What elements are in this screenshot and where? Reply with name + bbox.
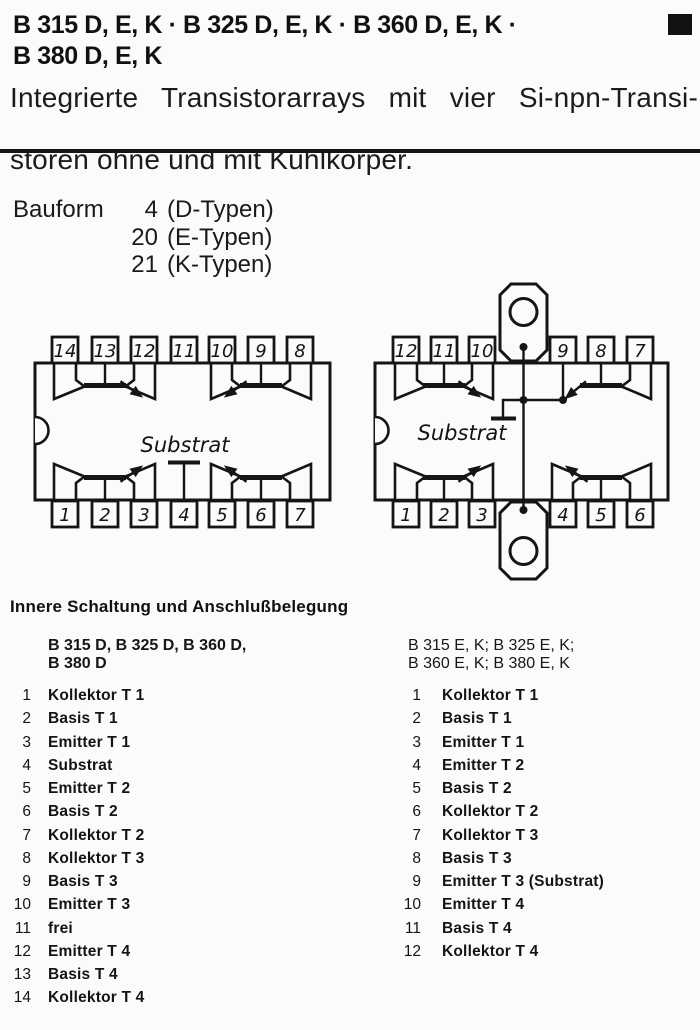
pin-list-row: 6Kollektor T 2 xyxy=(390,800,604,823)
junction-dot xyxy=(559,396,567,404)
pin-number: 1 xyxy=(0,684,31,707)
pin-number: 2 xyxy=(99,505,110,526)
pin-number: 2 xyxy=(390,707,421,730)
pin-number: 4 xyxy=(557,505,568,526)
pin-number: 3 xyxy=(390,731,421,754)
pin-number: 5 xyxy=(216,505,227,526)
pin-label: Basis T 4 xyxy=(442,917,512,940)
pin-number: 3 xyxy=(0,731,31,754)
pin-label: Basis T 3 xyxy=(48,870,118,893)
pin-list-row: 9Emitter T 3 (Substrat) xyxy=(390,870,604,893)
pin-list-row: 3Emitter T 1 xyxy=(0,731,144,754)
pin-number: 5 xyxy=(595,505,606,526)
pin-list-row: 5Basis T 2 xyxy=(390,777,604,800)
pin-number: 1 xyxy=(400,505,411,526)
pin-squares-bottom: 1 2 3 4 5 6 7 xyxy=(52,501,313,527)
pin-number: 11 xyxy=(0,917,31,940)
pin-label: Kollektor T 1 xyxy=(48,684,144,707)
pin-list-row: 12Kollektor T 4 xyxy=(390,940,604,963)
pin-label: Emitter T 2 xyxy=(48,777,130,800)
pin-list-row: 1Kollektor T 1 xyxy=(390,684,604,707)
pin-number: 9 xyxy=(557,341,568,362)
pin-number: 9 xyxy=(0,870,31,893)
pin-label: Emitter T 4 xyxy=(48,940,130,963)
pin-number: 14 xyxy=(54,341,77,362)
pin-number: 12 xyxy=(133,341,156,362)
pin-number: 8 xyxy=(294,341,305,362)
left-group-title: B 315 D, B 325 D, B 360 D, B 380 D xyxy=(48,637,246,672)
pin-label: Basis T 2 xyxy=(48,800,118,823)
pin-list-row: 6Basis T 2 xyxy=(0,800,144,823)
pin-list-row: 5Emitter T 2 xyxy=(0,777,144,800)
left-group-title-line2: B 380 D xyxy=(48,655,246,673)
substrate-label: Substrat xyxy=(418,421,508,445)
pin-number: 4 xyxy=(178,505,189,526)
pin-label: frei xyxy=(48,917,73,940)
pin-number: 9 xyxy=(390,870,421,893)
left-group-title-line1: B 315 D, B 325 D, B 360 D, xyxy=(48,637,246,655)
pin-number: 5 xyxy=(0,777,31,800)
dip12-heatsink-diagram: Substrat 12 11 10 9 8 7 xyxy=(375,284,668,579)
pin-list-row: 11Basis T 4 xyxy=(390,917,604,940)
pin-list-d-types: 1Kollektor T 1 2Basis T 1 3Emitter T 1 4… xyxy=(0,684,144,1010)
right-group-title: B 315 E, K; B 325 E, K; B 360 E, K; B 38… xyxy=(408,637,574,672)
pin-list-ek-types: 1Kollektor T 1 2Basis T 1 3Emitter T 1 4… xyxy=(390,684,604,963)
pin-number: 1 xyxy=(390,684,421,707)
junction-dot xyxy=(520,396,528,404)
pin-label: Emitter T 2 xyxy=(442,754,524,777)
pin-label: Kollektor T 2 xyxy=(442,800,538,823)
pin-number: 8 xyxy=(0,847,31,870)
pin-list-row: 4Substrat xyxy=(0,754,144,777)
pin-list-row: 8Kollektor T 3 xyxy=(0,847,144,870)
pin-number: 7 xyxy=(634,341,646,362)
junction-dot xyxy=(520,343,528,351)
pin-label: Kollektor T 4 xyxy=(48,986,144,1009)
pin-list-row: 7Kollektor T 3 xyxy=(390,824,604,847)
pin-list-row: 4Emitter T 2 xyxy=(390,754,604,777)
pin-list-row: 3Emitter T 1 xyxy=(390,731,604,754)
pin-label: Emitter T 3 (Substrat) xyxy=(442,870,604,893)
pin-number: 7 xyxy=(0,824,31,847)
pin-number: 10 xyxy=(471,341,494,362)
pin-list-row: 9Basis T 3 xyxy=(0,870,144,893)
pin-number: 6 xyxy=(0,800,31,823)
pin-list-row: 8Basis T 3 xyxy=(390,847,604,870)
pin-label: Basis T 1 xyxy=(442,707,512,730)
pin-number: 12 xyxy=(395,341,418,362)
pin-number: 7 xyxy=(294,505,306,526)
pin-label: Basis T 2 xyxy=(442,777,512,800)
pin-list-row: 10Emitter T 3 xyxy=(0,893,144,916)
pin-label: Kollektor T 3 xyxy=(442,824,538,847)
pin-label: Substrat xyxy=(48,754,112,777)
pin-number: 11 xyxy=(173,341,196,362)
right-group-title-line2: B 360 E, K; B 380 E, K xyxy=(408,655,574,673)
pin-label: Kollektor T 4 xyxy=(442,940,538,963)
pin-list-row: 11frei xyxy=(0,917,144,940)
pin-number: 9 xyxy=(255,341,266,362)
pin-label: Basis T 3 xyxy=(442,847,512,870)
pin-label: Emitter T 3 xyxy=(48,893,130,916)
pin-number: 8 xyxy=(595,341,606,362)
pin-number: 10 xyxy=(0,893,31,916)
pin-list-row: 2Basis T 1 xyxy=(390,707,604,730)
pin-number: 12 xyxy=(390,940,421,963)
pin-list-row: 7Kollektor T 2 xyxy=(0,824,144,847)
pin-number: 11 xyxy=(433,341,456,362)
right-group-title-line1: B 315 E, K; B 325 E, K; xyxy=(408,637,574,655)
pin-number: 2 xyxy=(438,505,449,526)
pin-number: 13 xyxy=(0,963,31,986)
tab-hole-icon xyxy=(510,538,537,565)
pin-number: 2 xyxy=(0,707,31,730)
datasheet-page: B 315 D, E, K · B 325 D, E, K · B 360 D,… xyxy=(0,0,700,1030)
pin-number: 1 xyxy=(59,505,70,526)
pin-number: 10 xyxy=(211,341,234,362)
pin-list-row: 2Basis T 1 xyxy=(0,707,144,730)
pin-label: Emitter T 1 xyxy=(442,731,524,754)
pin-list-row: 13Basis T 4 xyxy=(0,963,144,986)
pin-label: Kollektor T 1 xyxy=(442,684,538,707)
pin-list-row: 12Emitter T 4 xyxy=(0,940,144,963)
pin-number: 10 xyxy=(390,893,421,916)
pin-label: Emitter T 4 xyxy=(442,893,524,916)
pin-list-row: 10Emitter T 4 xyxy=(390,893,604,916)
pin-list-row: 1Kollektor T 1 xyxy=(0,684,144,707)
section-heading: Innere Schaltung und Anschlußbelegung xyxy=(10,597,348,617)
pin-label: Kollektor T 2 xyxy=(48,824,144,847)
substrate-label: Substrat xyxy=(141,433,231,457)
pin-number: 14 xyxy=(0,986,31,1009)
pin-label: Basis T 4 xyxy=(48,963,118,986)
pin-number: 11 xyxy=(390,917,421,940)
pin-number: 7 xyxy=(390,824,421,847)
pin-label: Emitter T 1 xyxy=(48,731,130,754)
pin-number: 5 xyxy=(390,777,421,800)
pin-number: 6 xyxy=(634,505,645,526)
pin-number: 3 xyxy=(476,505,487,526)
pin-number: 6 xyxy=(255,505,266,526)
pin-number: 6 xyxy=(390,800,421,823)
pin-number: 12 xyxy=(0,940,31,963)
pin-number: 3 xyxy=(138,505,149,526)
pin-number: 13 xyxy=(94,341,117,362)
junction-dot xyxy=(520,506,528,514)
pin-number: 4 xyxy=(390,754,421,777)
pin-number: 4 xyxy=(0,754,31,777)
pin-number: 8 xyxy=(390,847,421,870)
tab-hole-icon xyxy=(510,299,537,326)
pin-squares-top: 14 13 12 11 10 9 8 xyxy=(52,337,313,363)
pin-list-row: 14Kollektor T 4 xyxy=(0,986,144,1009)
dip14-diagram: Substrat 14 13 12 11 10 9 8 xyxy=(35,337,330,527)
pin-label: Basis T 1 xyxy=(48,707,118,730)
pin-label: Kollektor T 3 xyxy=(48,847,144,870)
